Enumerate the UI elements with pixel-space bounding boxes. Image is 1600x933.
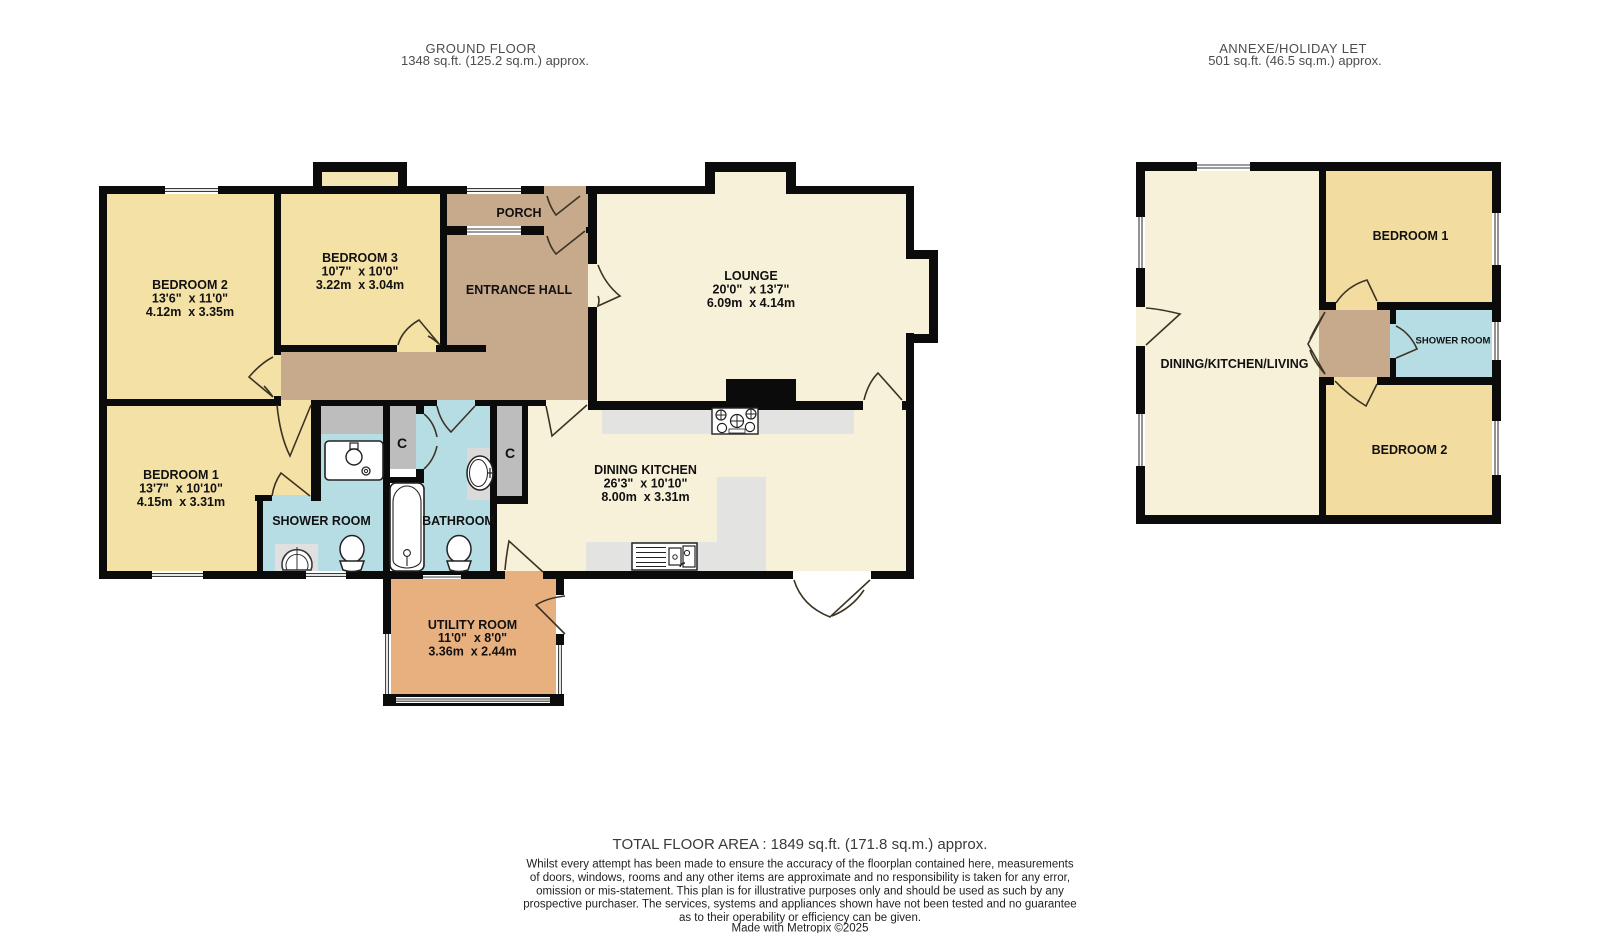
svg-text:4.15m x 3.31m: 4.15m x 3.31m bbox=[137, 495, 225, 509]
svg-text:SHOWER ROOM: SHOWER ROOM bbox=[1416, 336, 1491, 347]
svg-text:BEDROOM 3: BEDROOM 3 bbox=[322, 251, 398, 265]
svg-text:DINING KITCHEN: DINING KITCHEN bbox=[594, 463, 697, 477]
svg-text:BEDROOM 1: BEDROOM 1 bbox=[143, 468, 219, 482]
svg-text:TOTAL FLOOR AREA : 1849 sq.ft.: TOTAL FLOOR AREA : 1849 sq.ft. (171.8 sq… bbox=[613, 836, 988, 853]
svg-text:C: C bbox=[397, 435, 407, 451]
svg-text:ENTRANCE HALL: ENTRANCE HALL bbox=[466, 283, 573, 297]
svg-text:3.36m x 2.44m: 3.36m x 2.44m bbox=[428, 645, 516, 659]
svg-text:8.00m x 3.31m: 8.00m x 3.31m bbox=[601, 490, 689, 504]
svg-text:26'3" x 10'10": 26'3" x 10'10" bbox=[604, 477, 688, 491]
svg-text:BEDROOM 2: BEDROOM 2 bbox=[1372, 443, 1448, 457]
svg-text:Whilst every attempt has been: Whilst every attempt has been made to en… bbox=[526, 859, 1073, 871]
svg-text:C: C bbox=[505, 445, 515, 461]
svg-text:11'0" x 8'0": 11'0" x 8'0" bbox=[438, 631, 507, 645]
svg-text:1348 sq.ft. (125.2 sq.m.) appr: 1348 sq.ft. (125.2 sq.m.) approx. bbox=[401, 53, 589, 68]
svg-text:20'0" x 13'7": 20'0" x 13'7" bbox=[713, 283, 790, 297]
svg-text:Made with Metropix ©2025: Made with Metropix ©2025 bbox=[732, 923, 869, 933]
svg-text:UTILITY ROOM: UTILITY ROOM bbox=[428, 618, 517, 632]
svg-text:PORCH: PORCH bbox=[496, 206, 541, 220]
svg-text:13'7" x 10'10": 13'7" x 10'10" bbox=[139, 481, 223, 495]
svg-text:omission or mis-statement. Thi: omission or mis-statement. This plan is … bbox=[536, 886, 1064, 898]
svg-text:6.09m x 4.14m: 6.09m x 4.14m bbox=[707, 296, 795, 310]
svg-text:BATHROOM: BATHROOM bbox=[422, 514, 495, 528]
svg-text:prospective purchaser. The ser: prospective purchaser. The services, sys… bbox=[523, 899, 1076, 911]
svg-text:LOUNGE: LOUNGE bbox=[724, 269, 777, 283]
svg-text:3.22m x 3.04m: 3.22m x 3.04m bbox=[316, 278, 404, 292]
svg-text:BEDROOM 1: BEDROOM 1 bbox=[1373, 229, 1449, 243]
svg-text:DINING/KITCHEN/LIVING: DINING/KITCHEN/LIVING bbox=[1161, 357, 1309, 371]
svg-text:10'7" x 10'0": 10'7" x 10'0" bbox=[322, 265, 399, 279]
svg-text:501 sq.ft. (46.5 sq.m.) approx: 501 sq.ft. (46.5 sq.m.) approx. bbox=[1208, 53, 1381, 68]
svg-text:SHOWER ROOM: SHOWER ROOM bbox=[272, 514, 371, 528]
svg-text:BEDROOM 2: BEDROOM 2 bbox=[152, 278, 228, 292]
svg-text:of doors, windows, rooms and a: of doors, windows, rooms and any other i… bbox=[530, 872, 1070, 884]
svg-text:4.12m x 3.35m: 4.12m x 3.35m bbox=[146, 305, 234, 319]
svg-text:13'6" x 11'0": 13'6" x 11'0" bbox=[152, 292, 228, 306]
